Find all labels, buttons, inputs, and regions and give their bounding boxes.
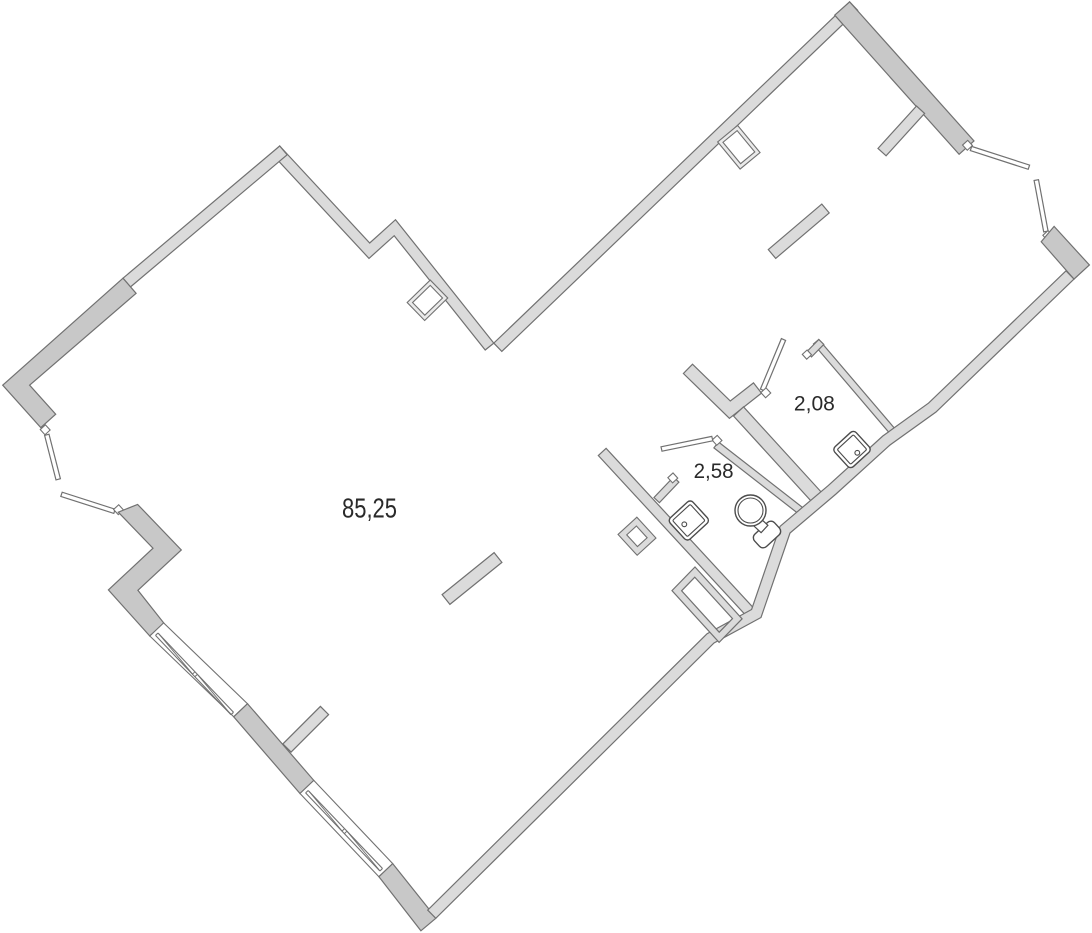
svg-text:85,25: 85,25 bbox=[342, 492, 397, 523]
svg-text:2,58: 2,58 bbox=[694, 460, 734, 483]
svg-text:2,08: 2,08 bbox=[794, 393, 835, 416]
